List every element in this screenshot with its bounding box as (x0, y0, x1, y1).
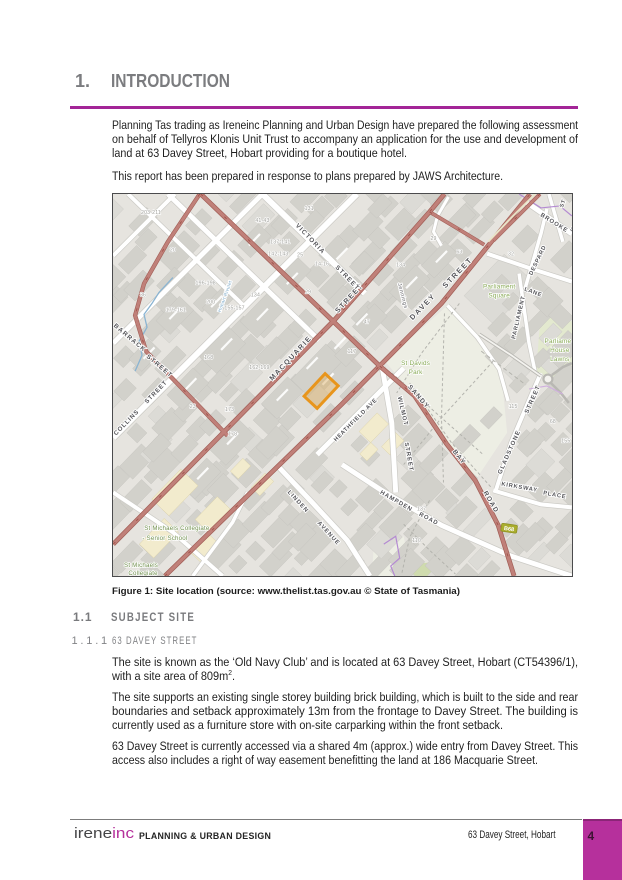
svg-text:St Davids: St Davids (401, 360, 430, 367)
svg-text:23: 23 (190, 404, 196, 410)
svg-text:178: 178 (228, 432, 237, 438)
svg-text:47: 47 (364, 319, 370, 325)
svg-text:29: 29 (430, 236, 436, 242)
svg-text:20: 20 (170, 248, 176, 254)
svg-text:200: 200 (206, 299, 215, 305)
svg-text:32: 32 (508, 252, 514, 258)
svg-text:Park: Park (409, 369, 423, 376)
svg-text:St Michaels Collegiate: St Michaels Collegiate (144, 525, 210, 532)
svg-text:41-43: 41-43 (255, 218, 269, 224)
svg-text:63: 63 (456, 250, 462, 256)
svg-text:68: 68 (550, 419, 556, 425)
svg-text:House: House (550, 347, 570, 354)
svg-text:179-161: 179-161 (166, 307, 186, 313)
svg-text:168: 168 (204, 355, 213, 361)
svg-text:155: 155 (561, 439, 570, 445)
svg-text:- Senior School: - Senior School (142, 535, 187, 542)
svg-text:Parliame: Parliame (545, 338, 572, 345)
svg-text:173: 173 (225, 407, 234, 413)
svg-text:Lawns: Lawns (550, 356, 569, 363)
svg-text:Collegiate: Collegiate (128, 570, 158, 577)
svg-text:36: 36 (140, 292, 146, 298)
svg-text:25: 25 (297, 253, 303, 259)
svg-text:St Michaels: St Michaels (124, 562, 158, 569)
svg-text:162-169: 162-169 (249, 365, 269, 371)
svg-text:134: 134 (396, 263, 405, 269)
svg-text:14-16: 14-16 (315, 262, 329, 268)
svg-text:196-198: 196-198 (196, 281, 216, 287)
svg-text:110: 110 (412, 538, 421, 544)
svg-text:117: 117 (348, 349, 357, 355)
svg-text:29: 29 (305, 289, 311, 295)
svg-text:137-141: 137-141 (270, 240, 290, 246)
svg-text:Square: Square (488, 292, 510, 299)
svg-text:142-143: 142-143 (268, 252, 288, 258)
svg-text:155-157: 155-157 (224, 305, 244, 311)
svg-text:Parliament: Parliament (483, 284, 515, 291)
svg-text:115: 115 (509, 404, 518, 410)
svg-text:134: 134 (251, 292, 260, 298)
svg-text:131: 131 (305, 206, 314, 212)
svg-text:137: 137 (417, 506, 426, 512)
svg-text:203-211: 203-211 (141, 210, 161, 216)
